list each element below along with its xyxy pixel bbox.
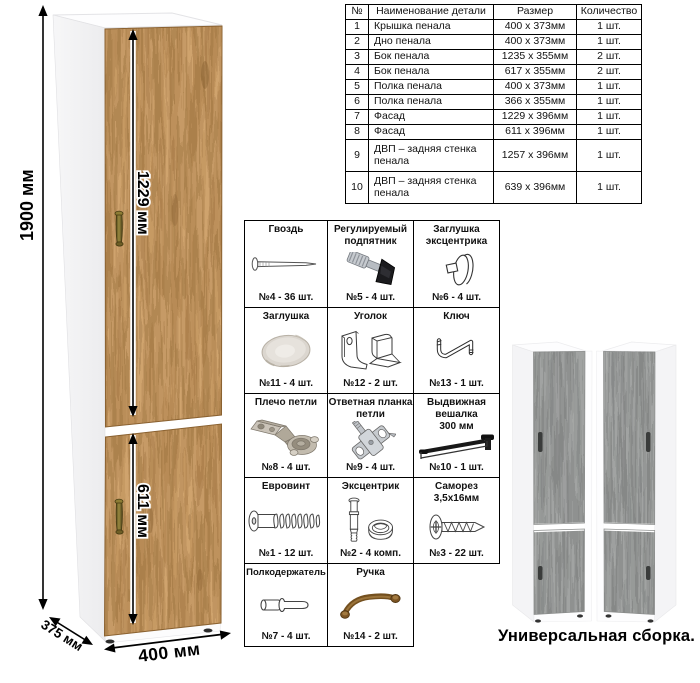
svg-text:400 мм: 400 мм	[137, 639, 201, 666]
svg-text:611 мм: 611 мм	[134, 484, 151, 538]
svg-text:1229 мм: 1229 мм	[134, 171, 151, 235]
svg-text:1900 мм: 1900 мм	[17, 169, 37, 241]
